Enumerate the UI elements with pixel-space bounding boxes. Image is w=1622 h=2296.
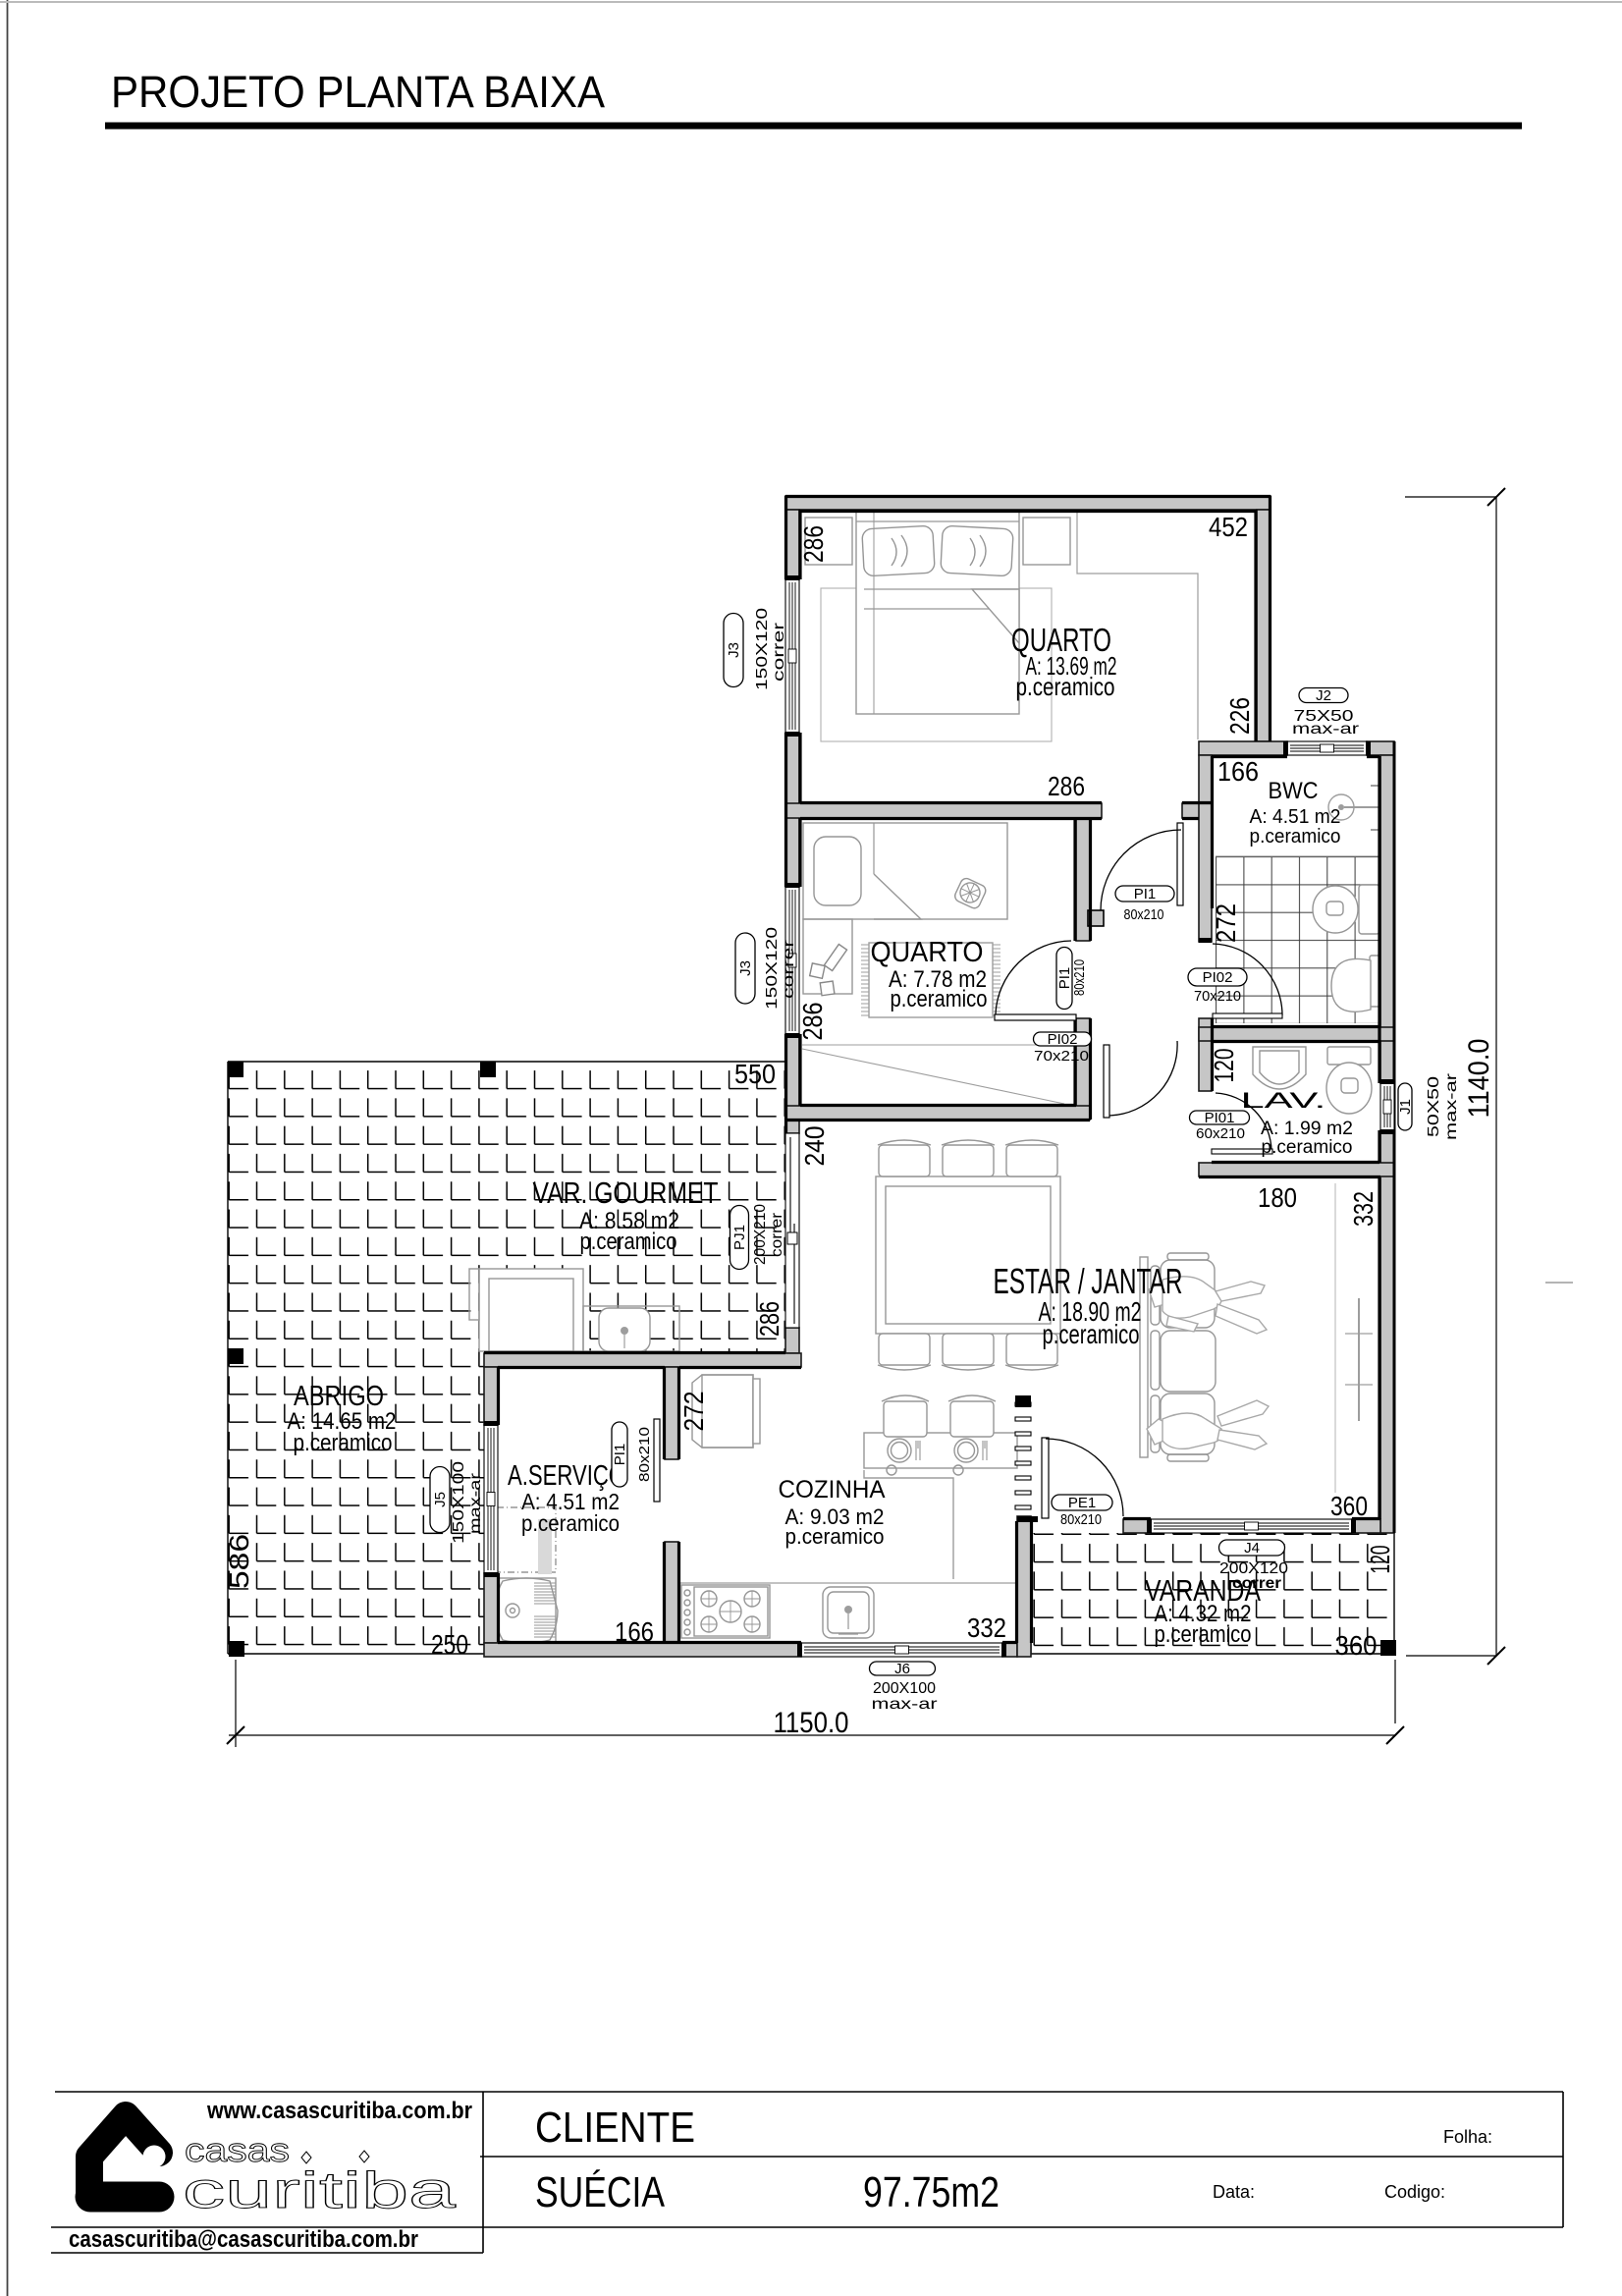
svg-text:correr: correr xyxy=(771,622,787,682)
svg-text:p.ceramico: p.ceramico xyxy=(1155,1621,1252,1648)
svg-text:166: 166 xyxy=(615,1616,654,1647)
svg-text:correr: correr xyxy=(1232,1575,1281,1592)
svg-text:p.ceramico: p.ceramico xyxy=(294,1430,393,1456)
svg-text:97.75m2: 97.75m2 xyxy=(863,2168,1000,2216)
svg-text:PI1: PI1 xyxy=(1134,886,1157,902)
svg-text:200X210: 200X210 xyxy=(752,1204,769,1265)
svg-text:J3: J3 xyxy=(737,960,754,976)
svg-text:PI02: PI02 xyxy=(1203,969,1233,986)
svg-text:J4: J4 xyxy=(1244,1540,1260,1557)
svg-text:p.ceramico: p.ceramico xyxy=(785,1524,885,1549)
svg-text:BWC: BWC xyxy=(1269,778,1319,804)
svg-text:PI01: PI01 xyxy=(1205,1110,1235,1126)
svg-text:50X50: 50X50 xyxy=(1426,1076,1442,1137)
svg-text:COZINHA: COZINHA xyxy=(779,1476,886,1503)
svg-text:J2: J2 xyxy=(1316,687,1331,704)
svg-text:80x210: 80x210 xyxy=(1124,906,1164,923)
svg-text:586: 586 xyxy=(224,1534,254,1589)
svg-text:120: 120 xyxy=(1365,1546,1395,1574)
svg-text:70x210: 70x210 xyxy=(1194,988,1241,1005)
svg-text:max-ar: max-ar xyxy=(467,1472,484,1534)
svg-text:200X100: 200X100 xyxy=(873,1680,936,1697)
svg-text:1140.0: 1140.0 xyxy=(1463,1039,1495,1119)
svg-text:PROJETO PLANTA BAIXA: PROJETO PLANTA BAIXA xyxy=(111,67,605,117)
svg-text:150X100: 150X100 xyxy=(451,1461,467,1544)
svg-text:correr: correr xyxy=(769,1212,785,1257)
svg-text:VAR. GOURMET: VAR. GOURMET xyxy=(533,1175,719,1210)
svg-text:150X120: 150X120 xyxy=(764,927,781,1010)
svg-text:286: 286 xyxy=(1048,771,1085,801)
svg-text:70x210: 70x210 xyxy=(1034,1048,1089,1065)
svg-text:PI02: PI02 xyxy=(1048,1031,1078,1048)
svg-text:332: 332 xyxy=(1348,1191,1379,1227)
svg-text:p.ceramico: p.ceramico xyxy=(1043,1319,1140,1349)
svg-text:correr: correr xyxy=(781,939,797,999)
svg-text:150X120: 150X120 xyxy=(754,608,771,690)
svg-text:curitiba: curitiba xyxy=(183,2162,456,2219)
svg-text:max-ar: max-ar xyxy=(1443,1072,1460,1140)
svg-text:180: 180 xyxy=(1258,1182,1297,1213)
svg-text:SUÉCIA: SUÉCIA xyxy=(535,2168,666,2216)
svg-text:360: 360 xyxy=(1335,1630,1378,1661)
svg-text:p.ceramico: p.ceramico xyxy=(1262,1137,1353,1158)
svg-text:max-ar: max-ar xyxy=(1292,721,1360,738)
svg-text:272: 272 xyxy=(1211,903,1241,943)
svg-text:J5: J5 xyxy=(432,1492,449,1507)
svg-text:A.SERVIÇO: A.SERVIÇO xyxy=(508,1460,625,1492)
svg-text:casascuritiba@casascuritiba.co: casascuritiba@casascuritiba.com.br xyxy=(69,2226,418,2253)
svg-text:1150.0: 1150.0 xyxy=(774,1707,849,1739)
svg-text:LAV.: LAV. xyxy=(1241,1088,1326,1113)
svg-text:J1: J1 xyxy=(1397,1099,1414,1115)
svg-text:250: 250 xyxy=(431,1629,468,1660)
svg-text:ESTAR / JANTAR: ESTAR / JANTAR xyxy=(994,1261,1183,1301)
svg-text:80x210: 80x210 xyxy=(1071,959,1088,996)
svg-text:226: 226 xyxy=(1224,697,1255,735)
svg-text:PI1: PI1 xyxy=(612,1444,628,1466)
svg-text:p.ceramico: p.ceramico xyxy=(521,1510,620,1536)
svg-text:166: 166 xyxy=(1217,756,1259,787)
svg-text:120: 120 xyxy=(1209,1049,1239,1083)
svg-text:360: 360 xyxy=(1330,1491,1368,1521)
svg-text:J6: J6 xyxy=(894,1661,910,1677)
svg-text:80x210: 80x210 xyxy=(636,1427,653,1482)
svg-text:p.ceramico: p.ceramico xyxy=(580,1229,677,1255)
svg-text:550: 550 xyxy=(734,1059,776,1089)
svg-text:Data:: Data: xyxy=(1213,2182,1255,2202)
svg-text:Folha:: Folha: xyxy=(1443,2127,1492,2147)
svg-text:max-ar: max-ar xyxy=(872,1696,939,1713)
svg-text:240: 240 xyxy=(799,1126,830,1167)
svg-text:p.ceramico: p.ceramico xyxy=(1016,672,1115,701)
svg-text:60x210: 60x210 xyxy=(1196,1125,1245,1142)
svg-text:286: 286 xyxy=(797,1003,828,1041)
svg-text:www.casascuritiba.com.br: www.casascuritiba.com.br xyxy=(206,2098,472,2124)
svg-text:332: 332 xyxy=(967,1613,1006,1643)
svg-text:286: 286 xyxy=(798,525,829,563)
svg-text:Codigo:: Codigo: xyxy=(1384,2182,1445,2202)
svg-text:CLIENTE: CLIENTE xyxy=(535,2104,695,2152)
svg-text:p.ceramico: p.ceramico xyxy=(1250,826,1341,847)
svg-text:452: 452 xyxy=(1209,512,1248,542)
svg-text:p.ceramico: p.ceramico xyxy=(891,986,988,1012)
svg-text:272: 272 xyxy=(678,1392,709,1432)
svg-text:QUARTO: QUARTO xyxy=(871,937,984,968)
svg-text:PE1: PE1 xyxy=(1068,1495,1096,1511)
svg-text:A: 4.51 m2: A: 4.51 m2 xyxy=(1250,806,1341,828)
svg-text:286: 286 xyxy=(754,1301,784,1337)
svg-text:PJ1: PJ1 xyxy=(731,1225,748,1250)
svg-text:J3: J3 xyxy=(726,642,742,658)
svg-text:80x210: 80x210 xyxy=(1060,1511,1102,1528)
svg-text:A: 1.99 m2: A: 1.99 m2 xyxy=(1261,1119,1353,1139)
